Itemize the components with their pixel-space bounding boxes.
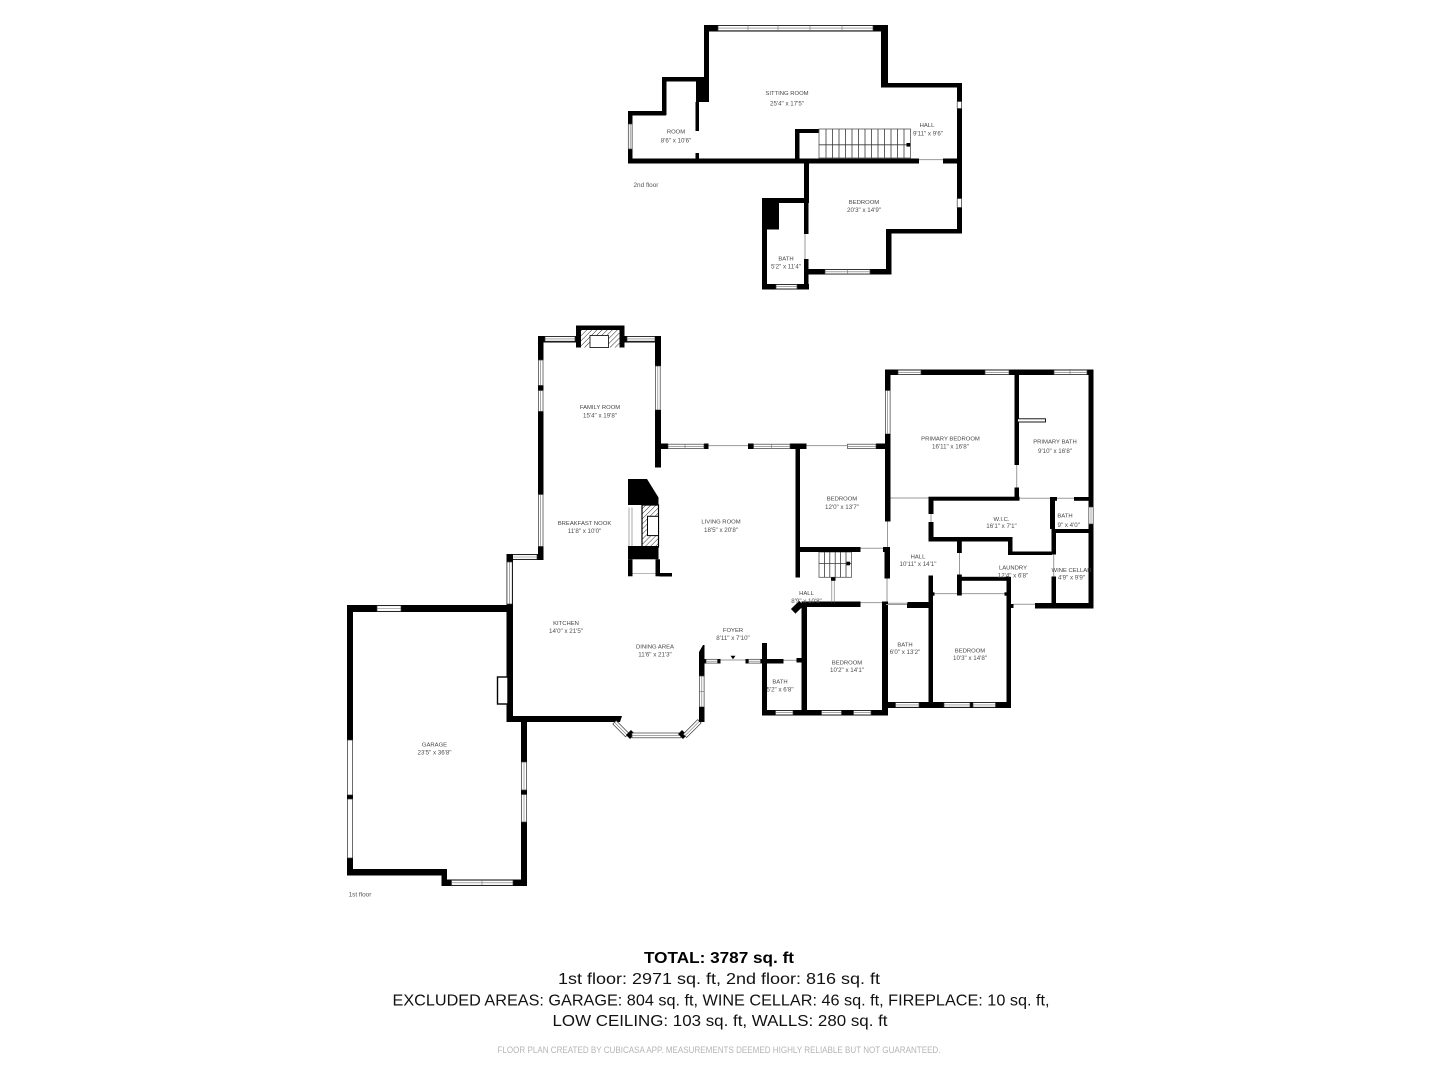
svg-text:PRIMARY BATH: PRIMARY BATH <box>1033 440 1077 446</box>
svg-text:9'10" x 16'8": 9'10" x 16'8" <box>1038 448 1072 455</box>
svg-text:BEDROOM: BEDROOM <box>849 200 880 206</box>
svg-text:BEDROOM: BEDROOM <box>827 497 858 503</box>
svg-text:BATH: BATH <box>772 680 787 686</box>
svg-text:LAUNDRY: LAUNDRY <box>999 566 1027 572</box>
svg-text:LOW CEILING: 103 sq. ft, WALLS: LOW CEILING: 103 sq. ft, WALLS: 280 sq. … <box>553 1013 889 1030</box>
svg-text:HALL: HALL <box>799 591 814 597</box>
svg-text:16'11" x 16'8": 16'11" x 16'8" <box>932 444 969 451</box>
svg-text:10'11" x 14'1": 10'11" x 14'1" <box>900 561 937 568</box>
svg-text:5'2" x 11'4": 5'2" x 11'4" <box>771 264 801 271</box>
svg-text:1st floor: 2971 sq. ft, 2nd fl: 1st floor: 2971 sq. ft, 2nd floor: 816 s… <box>558 971 881 988</box>
svg-text:11'6" x 21'3": 11'6" x 21'3" <box>638 652 671 659</box>
svg-text:LIVING ROOM: LIVING ROOM <box>701 520 740 526</box>
svg-text:WINE CELLAR: WINE CELLAR <box>1052 568 1092 574</box>
svg-text:8'9" x 10'8": 8'9" x 10'8" <box>791 598 822 605</box>
svg-text:8'6" x 10'6": 8'6" x 10'6" <box>661 137 692 144</box>
svg-text:8'11" x 7'10": 8'11" x 7'10" <box>716 635 749 642</box>
svg-text:11'8" x 10'0": 11'8" x 10'0" <box>568 528 601 535</box>
svg-text:20'3" x 14'9": 20'3" x 14'9" <box>847 207 881 214</box>
svg-text:18'5" x 20'8": 18'5" x 20'8" <box>704 527 738 534</box>
svg-text:10'2" x 14'1": 10'2" x 14'1" <box>830 667 864 674</box>
svg-text:KITCHEN: KITCHEN <box>553 621 579 627</box>
svg-text:15'4" x 19'8": 15'4" x 19'8" <box>583 412 617 419</box>
svg-text:FLOOR PLAN CREATED BY CUBICASA: FLOOR PLAN CREATED BY CUBICASA APP. MEAS… <box>498 1045 941 1055</box>
svg-text:DINING AREA: DINING AREA <box>636 644 674 650</box>
svg-text:HALL: HALL <box>911 555 926 561</box>
svg-text:BATH: BATH <box>778 257 793 263</box>
svg-text:BREAKFAST NOOK: BREAKFAST NOOK <box>558 521 612 527</box>
svg-text:10'3" x 14'8": 10'3" x 14'8" <box>953 655 987 662</box>
svg-text:BATH: BATH <box>897 643 912 649</box>
svg-text:25'4" x 17'5": 25'4" x 17'5" <box>770 101 804 108</box>
svg-text:4'9" x 9'9": 4'9" x 9'9" <box>1058 575 1085 582</box>
svg-text:SITTING ROOM: SITTING ROOM <box>765 91 808 97</box>
svg-text:W.I.C.: W.I.C. <box>993 517 1009 523</box>
svg-text:BEDROOM: BEDROOM <box>832 661 863 667</box>
svg-text:TOTAL: 3787 sq. ft: TOTAL: 3787 sq. ft <box>644 950 795 967</box>
svg-text:ROOM: ROOM <box>667 130 685 136</box>
svg-text:14'0" x 21'5": 14'0" x 21'5" <box>549 628 583 635</box>
svg-text:23'5" x 36'8": 23'5" x 36'8" <box>418 750 452 757</box>
svg-text:FOYER: FOYER <box>723 628 743 634</box>
svg-text:12'4" x 6'8": 12'4" x 6'8" <box>998 572 1029 579</box>
svg-text:BATH: BATH <box>1057 514 1072 520</box>
svg-text:9" x 4'0": 9" x 4'0" <box>1058 522 1080 529</box>
svg-text:PRIMARY BEDROOM: PRIMARY BEDROOM <box>921 437 980 443</box>
svg-text:HALL: HALL <box>920 123 935 129</box>
svg-text:BEDROOM: BEDROOM <box>955 649 986 655</box>
svg-text:12'0" x 13'7": 12'0" x 13'7" <box>825 504 859 511</box>
svg-text:1st floor: 1st floor <box>349 892 373 899</box>
svg-text:16'1" x 7'1": 16'1" x 7'1" <box>986 523 1017 530</box>
svg-text:EXCLUDED AREAS: GARAGE: 804 sq: EXCLUDED AREAS: GARAGE: 804 sq. ft, WINE… <box>393 992 1050 1009</box>
svg-text:5'2" x 6'8": 5'2" x 6'8" <box>766 686 793 693</box>
svg-text:6'0" x 13'2": 6'0" x 13'2" <box>890 649 921 656</box>
svg-text:2nd floor: 2nd floor <box>634 182 660 189</box>
svg-text:9'11" x 9'6": 9'11" x 9'6" <box>913 131 943 138</box>
svg-text:FAMILY ROOM: FAMILY ROOM <box>580 405 620 411</box>
svg-text:GARAGE: GARAGE <box>422 743 447 749</box>
